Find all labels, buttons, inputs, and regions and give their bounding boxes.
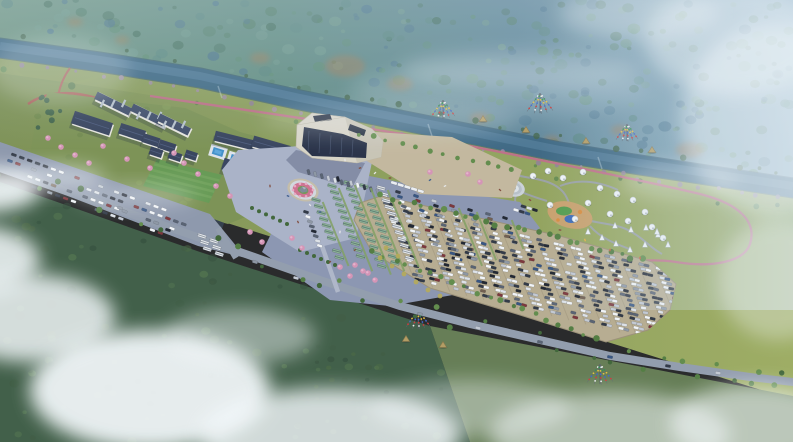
aerial-rendering-stage [0,0,793,442]
scene-svg [0,0,793,442]
tint-overlay [0,0,793,442]
